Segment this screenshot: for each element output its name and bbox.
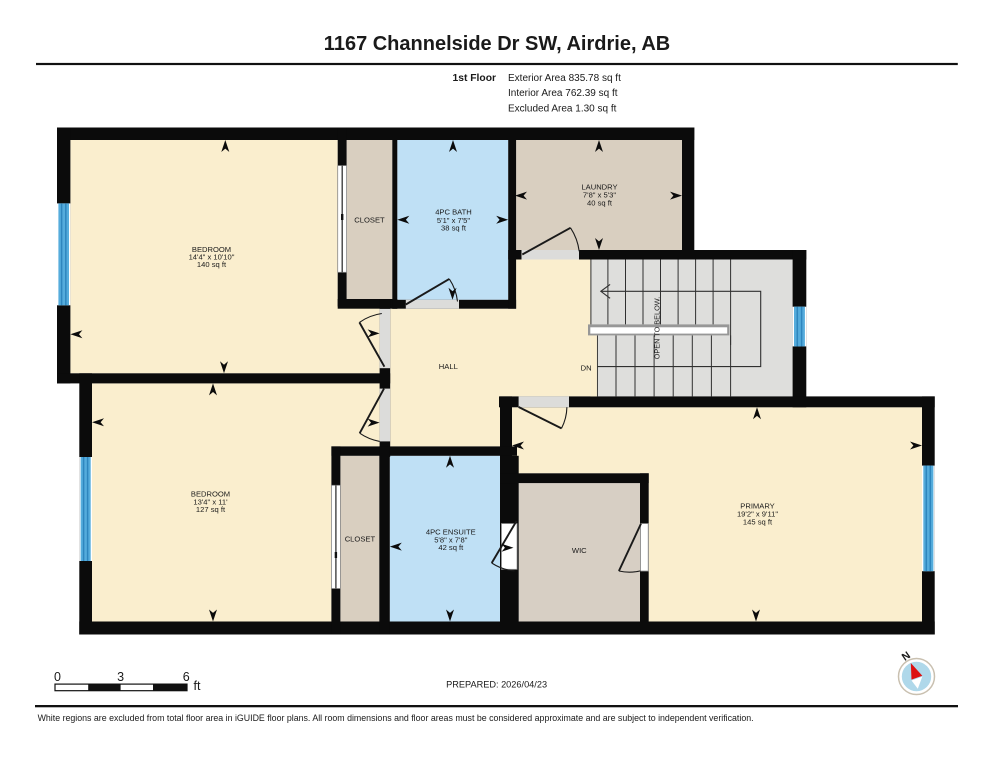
svg-text:Exterior Area 835.78 sq ft: Exterior Area 835.78 sq ft xyxy=(508,73,621,84)
svg-text:White regions are excluded fro: White regions are excluded from total fl… xyxy=(38,713,754,723)
svg-text:0: 0 xyxy=(54,670,61,684)
svg-text:OPEN TO BELOW.: OPEN TO BELOW. xyxy=(653,297,662,360)
svg-text:WIC: WIC xyxy=(572,546,587,555)
svg-text:HALL: HALL xyxy=(439,362,458,371)
svg-text:CLOSET: CLOSET xyxy=(354,216,385,225)
svg-text:DN: DN xyxy=(581,364,592,373)
svg-text:PREPARED: 2026/04/23: PREPARED: 2026/04/23 xyxy=(446,680,547,690)
svg-text:3: 3 xyxy=(117,670,124,684)
svg-text:127 sq ft: 127 sq ft xyxy=(196,505,226,514)
svg-text:Excluded Area 1.30 sq ft: Excluded Area 1.30 sq ft xyxy=(508,103,617,114)
svg-text:1st Floor: 1st Floor xyxy=(453,73,496,84)
svg-text:ft: ft xyxy=(194,679,201,693)
svg-text:1167 Channelside Dr SW, Airdri: 1167 Channelside Dr SW, Airdrie, AB xyxy=(324,33,670,55)
svg-text:42 sq ft: 42 sq ft xyxy=(438,543,464,552)
svg-text:6: 6 xyxy=(183,670,190,684)
svg-text:38 sq ft: 38 sq ft xyxy=(441,223,467,232)
svg-text:140 sq ft: 140 sq ft xyxy=(197,260,227,269)
svg-text:40 sq ft: 40 sq ft xyxy=(587,198,613,207)
svg-text:CLOSET: CLOSET xyxy=(345,535,376,544)
svg-text:145 sq ft: 145 sq ft xyxy=(743,517,773,526)
svg-text:Interior Area 762.39 sq ft: Interior Area 762.39 sq ft xyxy=(508,88,618,99)
